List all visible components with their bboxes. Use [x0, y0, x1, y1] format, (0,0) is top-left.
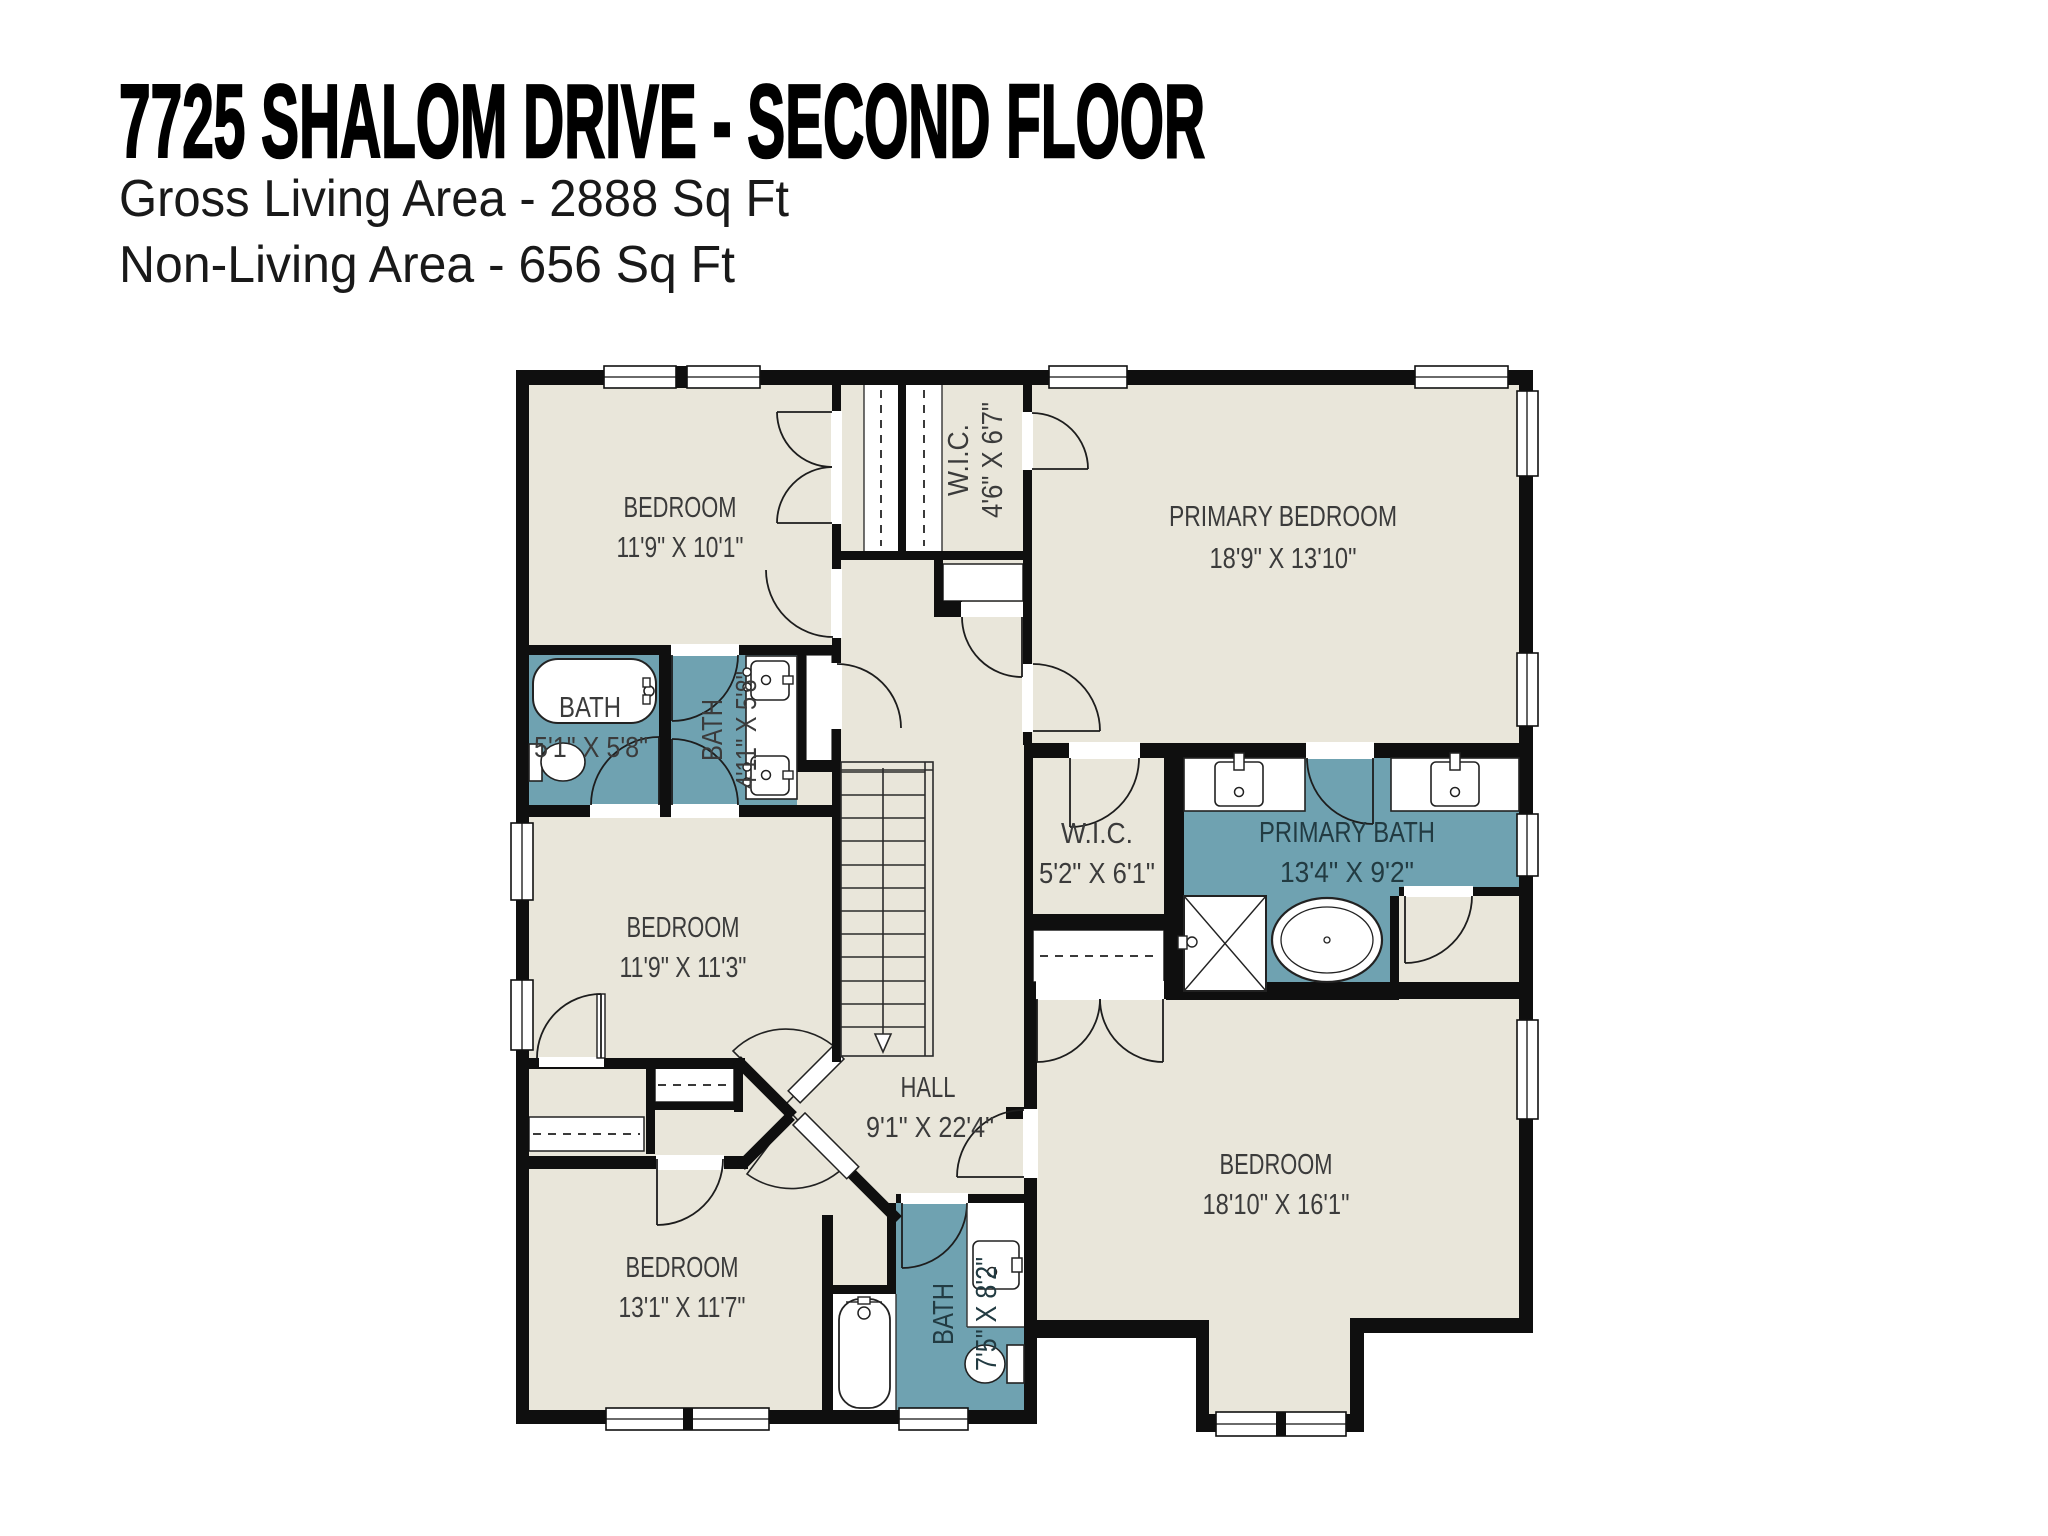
svg-text:BEDROOM: BEDROOM	[624, 492, 737, 524]
svg-text:BATH: BATH	[928, 1283, 960, 1345]
svg-text:18'10" X 16'1": 18'10" X 16'1"	[1203, 1189, 1350, 1221]
svg-text:11'9" X 10'1": 11'9" X 10'1"	[617, 532, 744, 564]
svg-text:Non-Living Area - 656 Sq Ft: Non-Living Area - 656 Sq Ft	[119, 236, 736, 294]
svg-text:PRIMARY BEDROOM: PRIMARY BEDROOM	[1169, 501, 1397, 533]
svg-text:BATH: BATH	[697, 699, 729, 761]
svg-text:4'11" X 5'8": 4'11" X 5'8"	[731, 671, 763, 789]
svg-text:7725 SHALOM DRIVE - SECOND FLO: 7725 SHALOM DRIVE - SECOND FLOOR	[119, 64, 1205, 180]
svg-text:W.I.C.: W.I.C.	[943, 424, 975, 496]
svg-text:7'5" X 8'2": 7'5" X 8'2"	[971, 1257, 1003, 1371]
svg-text:13'1" X 11'7": 13'1" X 11'7"	[619, 1292, 746, 1324]
svg-text:W.I.C.: W.I.C.	[1061, 818, 1133, 850]
svg-text:18'9" X 13'10": 18'9" X 13'10"	[1210, 543, 1357, 575]
svg-text:BATH: BATH	[559, 692, 621, 724]
svg-text:BEDROOM: BEDROOM	[626, 1252, 739, 1284]
svg-text:HALL: HALL	[901, 1072, 956, 1104]
svg-text:BEDROOM: BEDROOM	[1220, 1149, 1333, 1181]
svg-text:4'6" X 6'7": 4'6" X 6'7"	[977, 402, 1009, 518]
svg-text:BEDROOM: BEDROOM	[627, 912, 740, 944]
svg-text:11'9" X 11'3": 11'9" X 11'3"	[620, 952, 747, 984]
svg-text:PRIMARY BATH: PRIMARY BATH	[1259, 817, 1435, 849]
svg-text:5'2" X 6'1": 5'2" X 6'1"	[1039, 858, 1155, 890]
svg-text:5'1" X 5'8": 5'1" X 5'8"	[534, 732, 648, 764]
svg-text:9'1" X 22'4": 9'1" X 22'4"	[866, 1112, 994, 1144]
svg-text:13'4" X 9'2": 13'4" X 9'2"	[1280, 857, 1414, 889]
svg-text:Gross Living Area - 2888 Sq Ft: Gross Living Area - 2888 Sq Ft	[119, 170, 790, 228]
